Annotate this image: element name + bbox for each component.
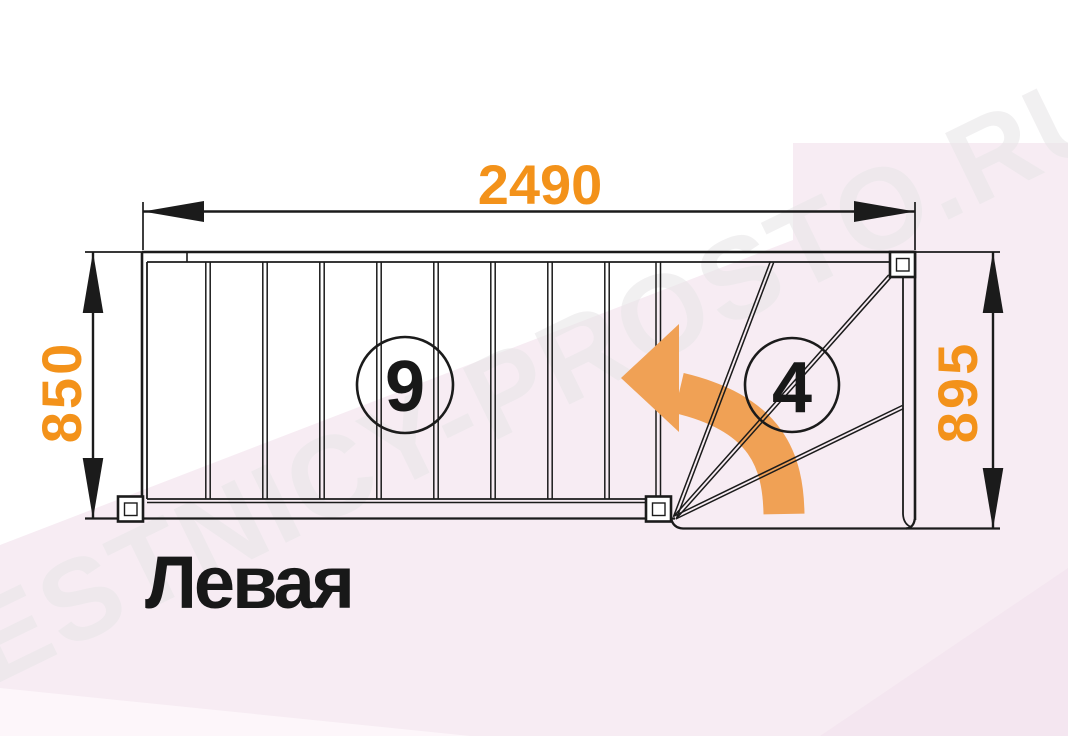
- stair-plan-diagram: LESTNICY-PROSTO.RU LESTNICY-PROSTO.RU: [0, 0, 1068, 736]
- dimension-arrow-left: [143, 201, 204, 222]
- winder-steps-count: 4: [772, 348, 812, 428]
- dimension-arrow-down: [983, 468, 1004, 529]
- winder-width-label: 895: [926, 341, 989, 443]
- flight-width-label: 850: [30, 341, 93, 443]
- dimension-total-length: 2490: [143, 153, 915, 250]
- total-length-label: 2490: [478, 153, 603, 216]
- dimension-flight-width: 850: [30, 252, 147, 519]
- straight-steps-count: 9: [385, 347, 425, 427]
- dimension-arrow-up: [83, 252, 104, 313]
- dimension-arrow-up: [983, 252, 1004, 313]
- staircase-outline: [85, 252, 1000, 529]
- plan-drawing: 9 4 2490 850 895: [0, 0, 1068, 736]
- dimension-arrow-right: [854, 201, 915, 222]
- page-title: Левая: [145, 541, 352, 624]
- dimension-winder-width: 895: [915, 252, 1003, 529]
- dimension-arrow-down: [83, 458, 104, 519]
- tread-lines: [206, 262, 661, 499]
- step-count-circle-winder: 4: [745, 338, 839, 432]
